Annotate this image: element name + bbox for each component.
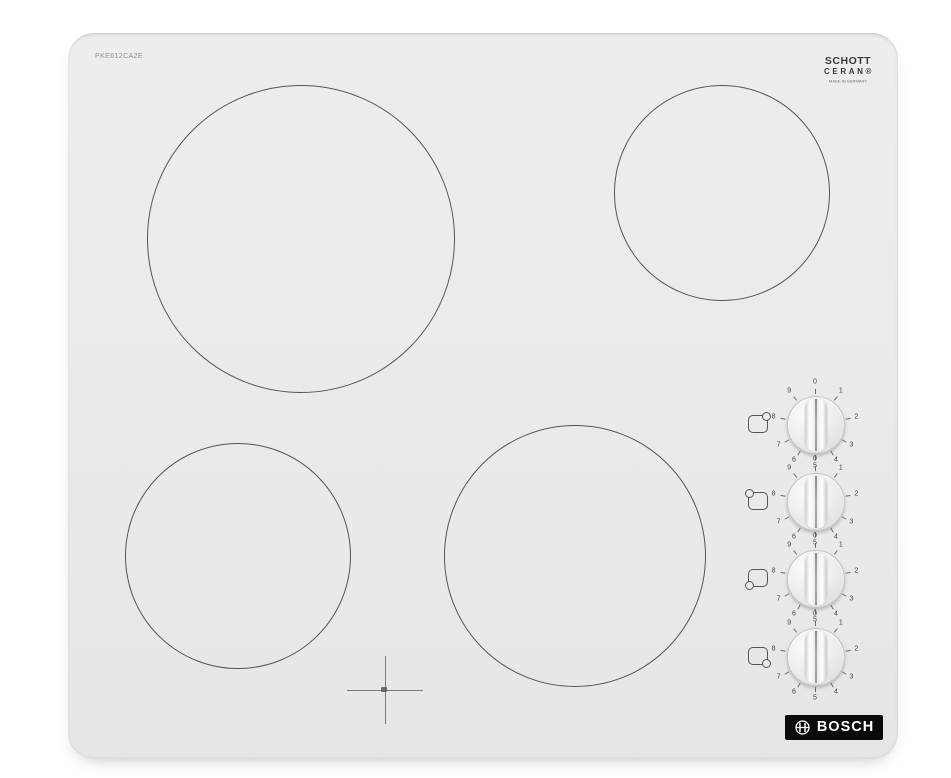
dial-tick	[797, 682, 800, 687]
dial-number-2: 2	[854, 645, 858, 652]
dial-number-8: 8	[772, 413, 776, 420]
dial-tick	[815, 543, 816, 548]
bosch-symbol-icon	[794, 719, 811, 736]
dial-tick	[833, 396, 837, 401]
dial-number-9: 9	[787, 464, 791, 471]
dial-number-0: 0	[813, 533, 817, 540]
dial-tick	[833, 628, 837, 633]
dial-number-2: 2	[854, 567, 858, 574]
dial-tick	[845, 494, 850, 496]
dial-tick	[793, 473, 797, 478]
bosch-logo: BOSCH	[785, 715, 883, 740]
dial-number-7: 7	[777, 442, 781, 449]
dial-number-0: 0	[813, 611, 817, 618]
dial-tick	[815, 466, 816, 471]
dial-number-8: 8	[772, 490, 776, 497]
dial-number-8: 8	[772, 567, 776, 574]
dial-tick	[841, 516, 846, 519]
knob-pointer	[815, 631, 817, 683]
dial-number-7: 7	[777, 674, 781, 681]
ceran-wordmark: CERAN®	[808, 67, 888, 76]
dial-number-3: 3	[849, 674, 853, 681]
knob-back-left[interactable]	[787, 473, 845, 531]
made-in-germany-text: MADE IN GERMANY	[828, 79, 868, 84]
dial-tick	[833, 550, 837, 555]
dial-tick	[784, 516, 789, 519]
zone-dot-icon	[745, 581, 754, 590]
schott-wordmark: SCHOTT	[808, 56, 888, 67]
knob-back-right[interactable]	[787, 396, 845, 454]
dial-number-8: 8	[772, 645, 776, 652]
dial-number-2: 2	[854, 413, 858, 420]
knob-pointer	[815, 476, 817, 528]
cooktop-surface: PKE612CA2E SCHOTT CERAN® MADE IN GERMANY…	[68, 33, 898, 759]
dial-tick	[780, 417, 785, 419]
dial-tick	[845, 417, 850, 419]
dial-tick	[841, 671, 846, 674]
dial-tick	[815, 687, 816, 692]
knob-front-left[interactable]	[787, 550, 845, 608]
cooking-zone-front-left	[125, 443, 351, 669]
dial-number-9: 9	[787, 541, 791, 548]
dial-tick	[793, 550, 797, 555]
dial-number-0: 0	[813, 456, 817, 463]
dial-tick	[845, 649, 850, 651]
dial-tick	[784, 671, 789, 674]
dial-number-1: 1	[839, 619, 843, 626]
dial-tick	[815, 621, 816, 626]
dial-number-7: 7	[777, 596, 781, 603]
crosshair-center-mark	[381, 687, 387, 692]
dial-number-4: 4	[834, 689, 838, 696]
dial-number-1: 1	[839, 464, 843, 471]
dial-number-3: 3	[849, 442, 853, 449]
bosch-wordmark: BOSCH	[817, 715, 874, 740]
knob-pointer	[815, 553, 817, 605]
dial-number-6: 6	[792, 689, 796, 696]
dial-number-1: 1	[839, 387, 843, 394]
dial-tick	[780, 494, 785, 496]
dial-number-9: 9	[787, 387, 791, 394]
dial-number-2: 2	[854, 490, 858, 497]
dial-tick	[780, 649, 785, 651]
dial-number-0: 0	[813, 379, 817, 386]
dial-tick	[841, 439, 846, 442]
dial-number-3: 3	[849, 596, 853, 603]
dial-tick	[815, 389, 816, 394]
dial-tick	[793, 396, 797, 401]
control-knob-front-right[interactable]: 0123456789	[765, 606, 865, 706]
schott-ceran-logo: SCHOTT CERAN® MADE IN GERMANY	[808, 56, 888, 88]
dial-tick	[784, 593, 789, 596]
knob-pointer	[815, 399, 817, 451]
cooking-zone-back-right	[614, 85, 830, 301]
dial-number-5: 5	[813, 695, 817, 702]
model-code: PKE612CA2E	[95, 53, 143, 60]
zone-dot-icon	[745, 489, 754, 498]
dial-number-7: 7	[777, 519, 781, 526]
dial-tick	[841, 593, 846, 596]
dial-tick	[845, 571, 850, 573]
dial-tick	[780, 571, 785, 573]
knob-front-right[interactable]	[787, 628, 845, 686]
dial-tick	[833, 473, 837, 478]
dial-tick	[784, 439, 789, 442]
cooking-zone-back-left	[147, 85, 455, 393]
dial-number-9: 9	[787, 619, 791, 626]
dial-number-3: 3	[849, 519, 853, 526]
dial-number-1: 1	[839, 541, 843, 548]
cooking-zone-front-right	[444, 425, 706, 687]
dial-tick	[830, 682, 833, 687]
dial-tick	[793, 628, 797, 633]
